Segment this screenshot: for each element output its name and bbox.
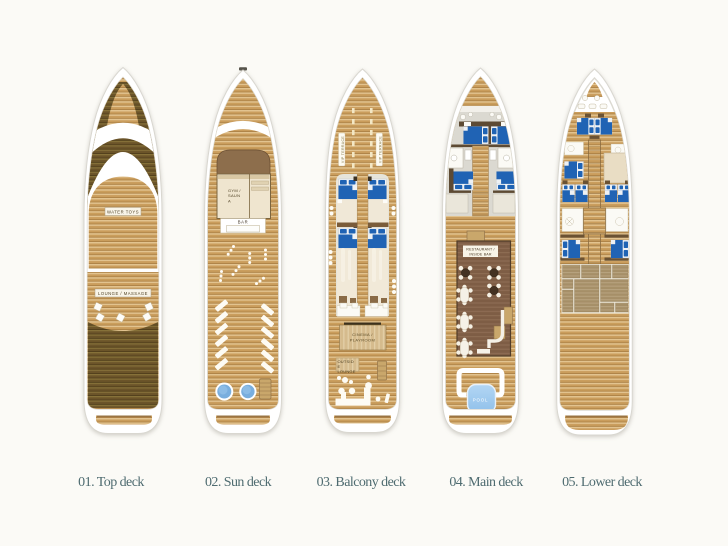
svg-text:SAUN: SAUN (228, 193, 240, 198)
svg-text:VIP TERRACE: VIP TERRACE (341, 136, 345, 163)
svg-text:VIP TERRACE: VIP TERRACE (379, 136, 383, 163)
svg-text:POOL: POOL (473, 398, 488, 403)
svg-text:RESTAURANT /: RESTAURANT / (466, 248, 494, 252)
svg-text:LOUNGE / MASSAGE: LOUNGE / MASSAGE (98, 291, 148, 296)
svg-text:A: A (228, 199, 231, 204)
svg-text:PLAYROOM: PLAYROOM (350, 338, 376, 343)
svg-text:INSIDE BAR: INSIDE BAR (469, 252, 492, 256)
svg-text:BAR: BAR (238, 220, 248, 225)
svg-text:CINEMA /: CINEMA / (352, 332, 373, 337)
svg-text:LOUNGE: LOUNGE (338, 369, 356, 374)
svg-text:WATER TOYS: WATER TOYS (107, 210, 139, 215)
